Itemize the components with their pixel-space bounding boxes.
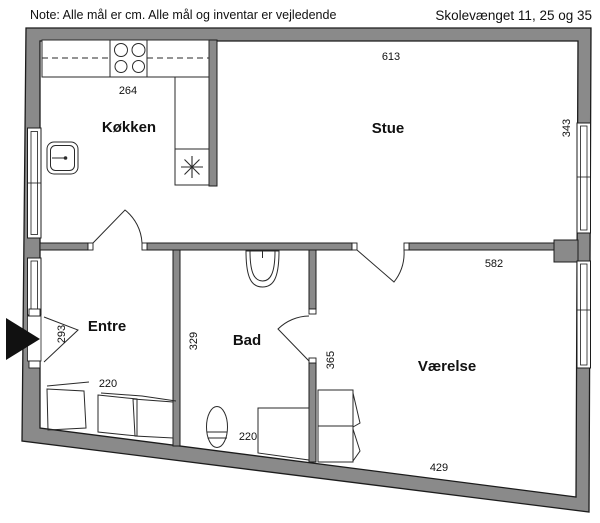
wall-hall-left [40, 243, 88, 250]
kitchen-window [28, 128, 42, 238]
note-text: Note: Alle mål er cm. Alle mål og invent… [30, 8, 336, 22]
jamb-bath-door-top [309, 309, 316, 314]
hall-wardrobe [47, 382, 176, 438]
toilet-icon [207, 407, 228, 448]
floorplan-page: Note: Alle mål er cm. Alle mål og invent… [0, 0, 600, 523]
room-label-hall: Entre [88, 318, 126, 335]
wall-bath-bedroom-upper [309, 250, 316, 309]
room-label-kitchen: Køkken [102, 119, 156, 136]
kitchen-door-swing [93, 210, 142, 243]
dim-hall-wardrobe: 220 [99, 378, 117, 390]
room-label-bedroom: Værelse [418, 358, 476, 375]
wall-bath-bedroom-lower [309, 363, 316, 462]
hall-window [28, 258, 42, 315]
living-window [577, 123, 591, 233]
exterior-walls [22, 28, 591, 512]
wall-hall-bath [173, 250, 180, 446]
floorplan-canvas: Note: Alle mål er cm. Alle mål og invent… [0, 0, 600, 523]
dim-bath-width: 220 [239, 431, 257, 443]
bath-door-swing [278, 316, 309, 361]
room-label-bath: Bad [233, 332, 261, 349]
address-text: Skolevænget 11, 25 og 35 [435, 8, 592, 23]
wall-junction-right [554, 240, 578, 262]
jamb-kitchen-door-right [142, 243, 147, 250]
dim-kitchen-width: 264 [119, 85, 137, 97]
wall-kitchen-living [209, 40, 217, 186]
stove-icon [110, 40, 147, 77]
dim-bedroom-top-width: 582 [485, 258, 503, 270]
bedroom-door-swing [357, 250, 404, 282]
wall-living-bedroom [409, 243, 556, 250]
jamb-bedroom-door-left [352, 243, 357, 250]
bedroom-wardrobe [318, 390, 360, 462]
dim-bath-depth: 329 [188, 332, 200, 350]
jamb-bedroom-door-right [404, 243, 409, 250]
dim-bedroom-bottom-width: 429 [430, 462, 448, 474]
wall-hall-mid [147, 243, 352, 250]
jamb-kitchen-door-left [88, 243, 93, 250]
jamb-bath-door-bottom [309, 358, 316, 363]
room-label-living: Stue [372, 120, 405, 137]
dim-entrance-opening: 293 [56, 325, 68, 343]
dim-bath-door-wall: 365 [325, 351, 337, 369]
shower-icon [258, 408, 309, 460]
dim-living-depth: 343 [561, 119, 573, 137]
dim-living-width: 613 [382, 51, 400, 63]
washbasin-icon [246, 251, 279, 287]
bedroom-window [577, 261, 591, 368]
kitchen-sink-icon [47, 142, 78, 174]
